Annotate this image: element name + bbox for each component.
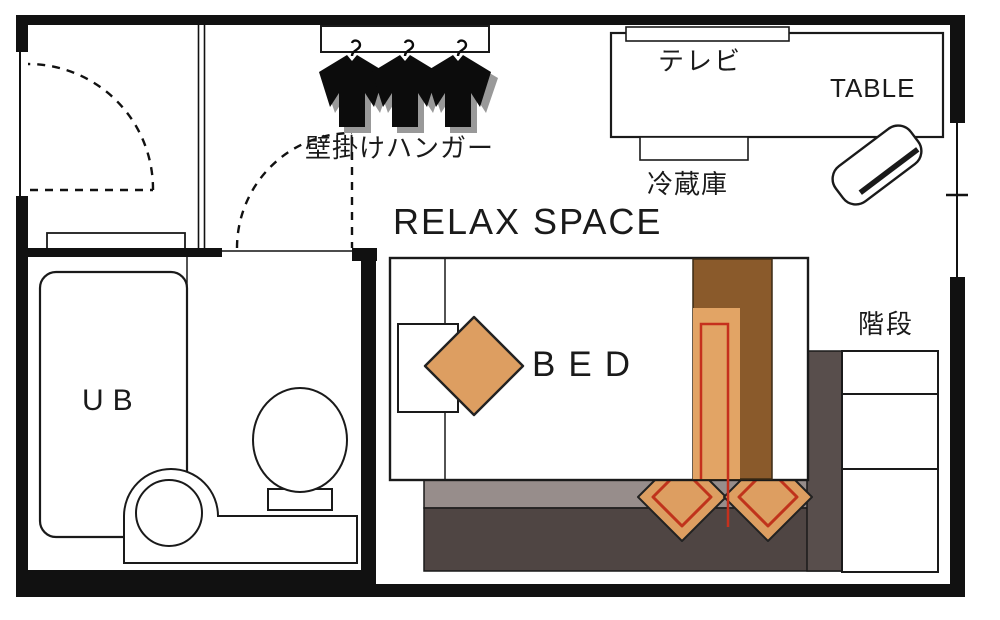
- wall-bottom: [16, 584, 965, 597]
- bed-label: BED: [532, 347, 643, 382]
- refrigerator-box: [640, 137, 748, 160]
- table-label: TABLE: [830, 75, 915, 101]
- clothes-icon: [425, 41, 498, 133]
- sink-bowl: [136, 480, 202, 546]
- refrigerator-label: 冷蔵庫: [647, 171, 728, 197]
- wall-hanger-label: 壁掛けハンガー: [305, 135, 494, 161]
- bathroom-wall-bottom: [16, 570, 376, 584]
- stair-landing: [807, 351, 842, 571]
- wall-top: [16, 15, 965, 25]
- bathroom-wall-top: [16, 248, 222, 257]
- stairs-label: 階段: [858, 311, 914, 337]
- bathroom-wall-right: [361, 248, 376, 584]
- entrance-step: [47, 233, 185, 249]
- unit-bath-label: UB: [82, 386, 142, 416]
- floor-plan: RELAX SPACE BED UB テレビ TABLE 冷蔵庫 階段 壁掛けハ…: [0, 0, 1000, 620]
- clothes-on-hangers: [319, 41, 498, 133]
- entry-door-swing: [28, 64, 153, 190]
- staircase: [842, 351, 938, 572]
- toilet-bowl: [253, 388, 347, 492]
- tv-label: テレビ: [658, 48, 742, 74]
- relax-space-label: RELAX SPACE: [393, 204, 662, 240]
- tv-unit: [626, 27, 789, 41]
